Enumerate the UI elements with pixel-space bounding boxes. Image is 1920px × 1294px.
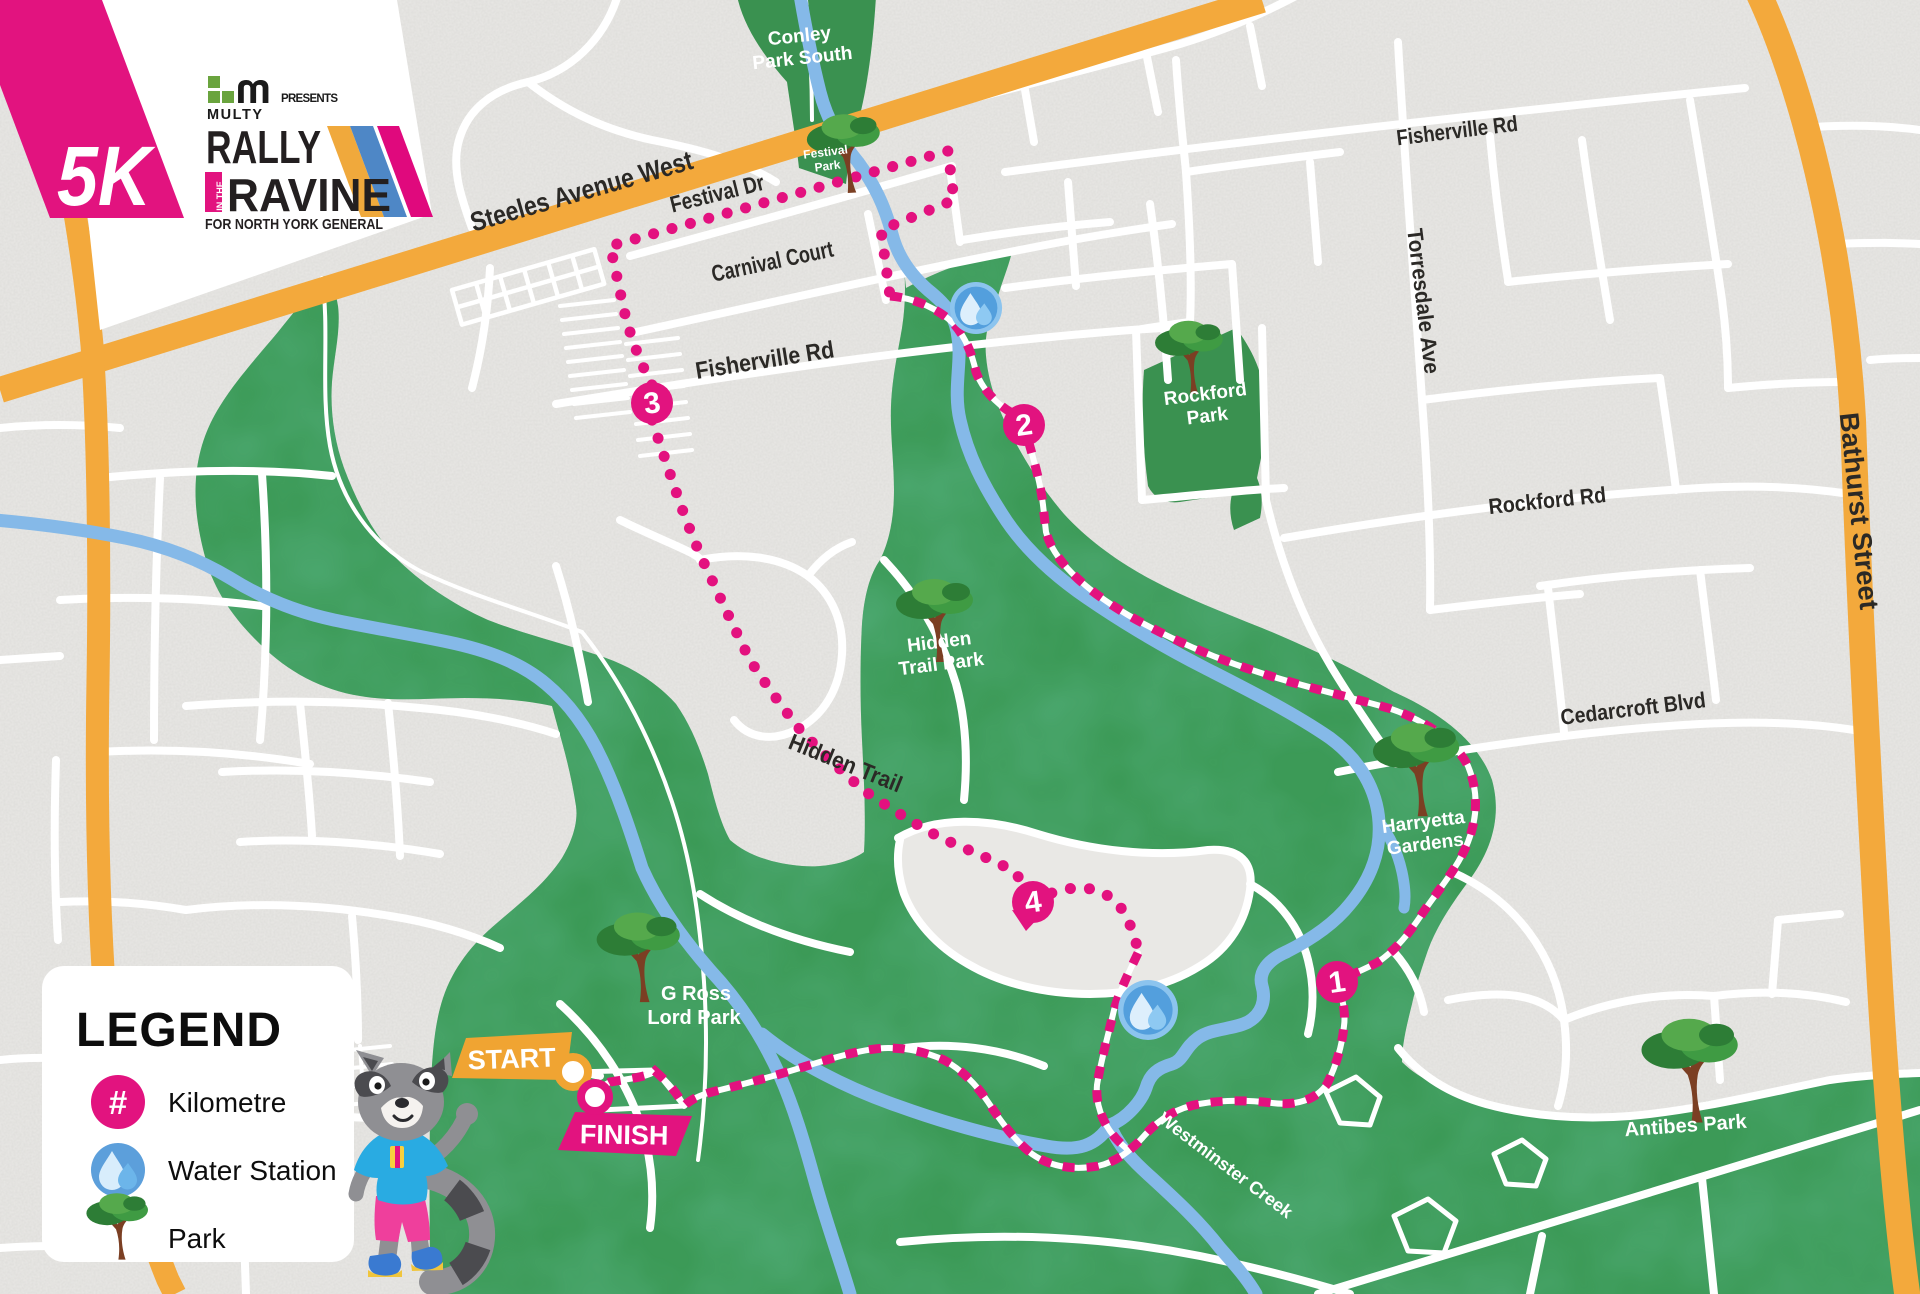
svg-text:FINISH: FINISH (580, 1119, 669, 1151)
svg-text:Lord Park: Lord Park (647, 1007, 741, 1029)
svg-text:5K: 5K (57, 129, 156, 223)
svg-text:RALLY: RALLY (206, 121, 321, 173)
svg-text:#: # (109, 1084, 127, 1121)
svg-text:Kilometre: Kilometre (168, 1087, 286, 1118)
svg-text:START: START (467, 1042, 556, 1075)
svg-text:RAVINE: RAVINE (227, 169, 391, 221)
svg-text:G Ross: G Ross (661, 983, 731, 1005)
svg-text:PRESENTS: PRESENTS (281, 93, 338, 105)
svg-text:FOR NORTH YORK GENERAL: FOR NORTH YORK GENERAL (205, 216, 383, 233)
svg-text:IN THE: IN THE (215, 181, 225, 211)
svg-text:LEGEND: LEGEND (76, 1004, 282, 1057)
svg-text:Water Station: Water Station (168, 1155, 337, 1186)
svg-text:Park: Park (168, 1223, 227, 1254)
